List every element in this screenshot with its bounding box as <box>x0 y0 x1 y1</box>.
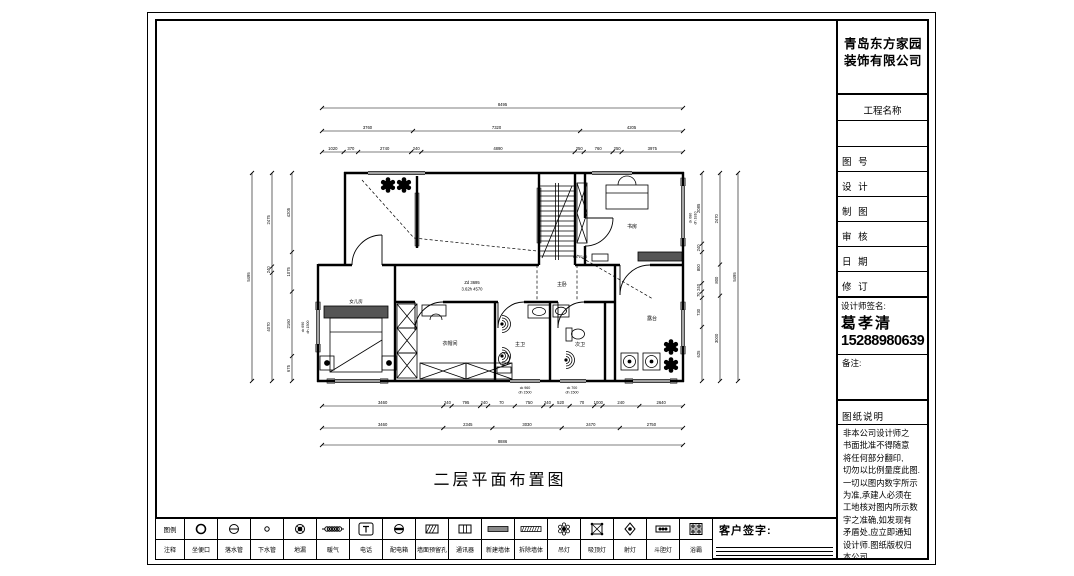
company-name: 青岛东方家园 装饰有限公司 <box>838 21 927 95</box>
customer-signature-box: 客户签字: <box>712 517 836 559</box>
room-label-daughter: 女儿房 <box>349 298 363 305</box>
staircase <box>540 183 574 260</box>
svg-text:1075: 1075 <box>286 266 291 276</box>
washbasin <box>533 308 546 316</box>
dimension-chains: 8495376073204205102037027402404890250760… <box>246 102 740 447</box>
field-revision: 修 订 <box>838 272 927 297</box>
project-name-value <box>838 121 927 147</box>
toilet-tank <box>566 328 572 341</box>
svg-text:3975: 3975 <box>648 146 658 151</box>
bed-headboard <box>324 306 388 318</box>
notes-title: 图纸说明 <box>838 401 927 425</box>
svg-text:250: 250 <box>576 146 584 151</box>
svg-text:240: 240 <box>696 283 701 291</box>
shower-icon <box>501 316 511 333</box>
remarks-label: 备注: <box>838 355 927 401</box>
svg-text:4205: 4205 <box>627 125 637 130</box>
svg-text:240: 240 <box>444 400 452 405</box>
svg-text:240: 240 <box>266 266 271 274</box>
room-label-terrace: 露台 <box>647 315 657 322</box>
annotation-height: 3.62h 4570 <box>462 287 484 292</box>
svg-text:2345: 2345 <box>463 422 473 427</box>
legend-item: 坐便口 <box>185 519 218 559</box>
svg-text:800: 800 <box>696 263 701 271</box>
designer-label: 设计师签名: <box>841 300 924 312</box>
furniture <box>320 176 682 379</box>
svg-text:3760: 3760 <box>363 125 373 130</box>
shower-icon <box>565 352 575 369</box>
legend-item: 地漏 <box>284 519 317 559</box>
legend-header: 图例 注释 <box>156 519 185 559</box>
room-label-cloak: 衣帽间 <box>442 340 457 347</box>
cabinet-small <box>592 254 608 261</box>
svg-text:70: 70 <box>499 400 504 405</box>
svg-text:2470: 2470 <box>714 213 719 223</box>
annotation-mk: mk 2140 <box>573 255 588 259</box>
svg-text:1000: 1000 <box>594 400 604 405</box>
field-review: 审 核 <box>838 222 927 247</box>
designer-phone: 15288980639 <box>841 333 924 349</box>
svg-text:370: 370 <box>347 146 355 151</box>
legend-item: 吸顶灯 <box>581 519 614 559</box>
desk <box>606 185 648 209</box>
svg-text:70: 70 <box>696 292 701 297</box>
wall-hole-icon <box>416 519 448 540</box>
svg-text:750: 750 <box>526 400 534 405</box>
svg-text:8886: 8886 <box>498 439 508 444</box>
svg-text:2740: 2740 <box>380 146 390 151</box>
legend-item: 新建墙体 <box>482 519 515 559</box>
svg-text:3460: 3460 <box>378 422 388 427</box>
svg-text:1020: 1020 <box>328 146 338 151</box>
svg-text:240: 240 <box>696 244 701 252</box>
project-name-label: 工程名称 <box>838 95 927 121</box>
window-label: dh 1500 <box>306 321 310 334</box>
toilet-outlet-icon <box>185 519 217 540</box>
svg-text:2475: 2475 <box>266 214 271 224</box>
plant-icons <box>381 177 678 373</box>
stool <box>430 314 442 320</box>
legend-item: 配电箱 <box>383 519 416 559</box>
toilet <box>572 329 585 339</box>
pendant-lamp-icon <box>548 519 580 540</box>
legend-item: 墙面预留孔 <box>416 519 449 559</box>
spotlight-icon <box>614 519 646 540</box>
designer-block: 设计师签名: 葛孝清 15288980639 <box>838 297 927 355</box>
plan-title: 二层平面布置图 <box>240 466 760 490</box>
svg-text:5495: 5495 <box>732 272 737 282</box>
legend-item: 斗胆灯 <box>647 519 680 559</box>
svg-text:240: 240 <box>617 400 625 405</box>
svg-text:5495: 5495 <box>246 272 251 282</box>
window-label: dh 1500 <box>566 391 579 395</box>
customer-signature-label: 客户签字: <box>713 519 836 538</box>
demolish-wall-icon <box>515 519 547 540</box>
svg-text:7320: 7320 <box>492 125 502 130</box>
legend-item: 下水管 <box>251 519 284 559</box>
svg-text:240: 240 <box>413 146 421 151</box>
annotation-zd: Zd 3695 <box>464 280 480 285</box>
bath-heater-icon <box>680 519 712 540</box>
svg-text:3030: 3030 <box>522 422 532 427</box>
legend-header-top: 图例 <box>156 519 184 540</box>
window-label: ck 680 <box>689 213 693 224</box>
designer-name: 葛孝清 <box>841 312 924 333</box>
signature-lines <box>716 544 833 556</box>
room-label-master-bath: 主卫 <box>515 341 525 348</box>
svg-text:4890: 4890 <box>493 146 503 151</box>
recessed-lamp-icon <box>647 519 679 540</box>
svg-text:760: 760 <box>595 146 603 151</box>
svg-text:240: 240 <box>481 400 489 405</box>
svg-text:250: 250 <box>614 146 622 151</box>
slope-dashed-lines <box>362 180 653 300</box>
window-label: dh 1810 <box>694 212 698 225</box>
window-label: ck 690 <box>301 322 305 333</box>
window-label: ck 960 <box>520 386 531 390</box>
svg-text:675: 675 <box>286 364 291 372</box>
ceiling-lamp-icon <box>581 519 613 540</box>
svg-text:240: 240 <box>544 400 552 405</box>
room-label-master-bed: 主卧 <box>557 281 567 288</box>
room-label-study: 书房 <box>627 223 637 230</box>
svg-text:800: 800 <box>714 276 719 284</box>
field-drafting: 制 图 <box>838 197 927 222</box>
legend-item: 电话 <box>350 519 383 559</box>
legend-item: 通讯器 <box>449 519 482 559</box>
svg-text:8495: 8495 <box>498 102 508 107</box>
svg-text:730: 730 <box>696 308 701 316</box>
svg-text:2160: 2160 <box>286 318 291 328</box>
svg-text:4070: 4070 <box>266 322 271 332</box>
svg-text:795: 795 <box>462 400 470 405</box>
floor-drain-icon <box>284 519 316 540</box>
window-label: ck 700 <box>567 386 578 390</box>
legend-bar: 图例 注释 坐便口 落水管 下水管 地漏 暖气 电话 配电箱 <box>156 517 712 559</box>
legend-item: 拆除墙体 <box>515 519 548 559</box>
drainpipe-icon <box>251 519 283 540</box>
drawing-sheet: 8495376073204205102037027402404890250760… <box>0 0 1074 576</box>
legend-item: 暖气 <box>317 519 350 559</box>
field-design: 设 计 <box>838 172 927 197</box>
svg-text:4205: 4205 <box>286 207 291 217</box>
window-label: dh 1500 <box>519 391 532 395</box>
legend-item: 浴霸 <box>680 519 712 559</box>
room-label-second-bath: 次卫 <box>575 341 585 348</box>
cabinet <box>638 252 682 261</box>
chair <box>618 176 636 185</box>
svg-text:625: 625 <box>696 350 701 358</box>
title-block: 青岛东方家园 装饰有限公司 工程名称 图 号 设 计 制 图 审 核 日 期 修… <box>836 19 929 560</box>
svg-text:3460: 3460 <box>378 400 388 405</box>
legend-header-bottom: 注释 <box>156 540 184 559</box>
svg-text:520: 520 <box>557 400 565 405</box>
field-date: 日 期 <box>838 247 927 272</box>
svg-text:2750: 2750 <box>647 422 657 427</box>
windows <box>315 170 686 384</box>
svg-text:2640: 2640 <box>656 400 666 405</box>
svg-text:70: 70 <box>580 400 585 405</box>
telephone-icon <box>350 519 382 540</box>
basin-counter <box>528 305 550 318</box>
floor-plan: 8495376073204205102037027402404890250760… <box>240 88 760 460</box>
field-drawing-no: 图 号 <box>838 147 927 172</box>
distribution-box-icon <box>383 519 415 540</box>
legend-item: 吊灯 <box>548 519 581 559</box>
downpipe-icon <box>218 519 250 540</box>
svg-text:3000: 3000 <box>714 333 719 343</box>
svg-text:2470: 2470 <box>586 422 596 427</box>
communicator-icon <box>449 519 481 540</box>
walls <box>317 172 684 382</box>
notes-body: 非本公司设计师之 书面批准不得随意 将任何部分翻印, 切勿以比例量度此图. 一切… <box>838 425 927 558</box>
legend-item: 射灯 <box>614 519 647 559</box>
new-wall-icon <box>482 519 514 540</box>
legend-item: 落水管 <box>218 519 251 559</box>
heating-icon <box>317 519 349 540</box>
